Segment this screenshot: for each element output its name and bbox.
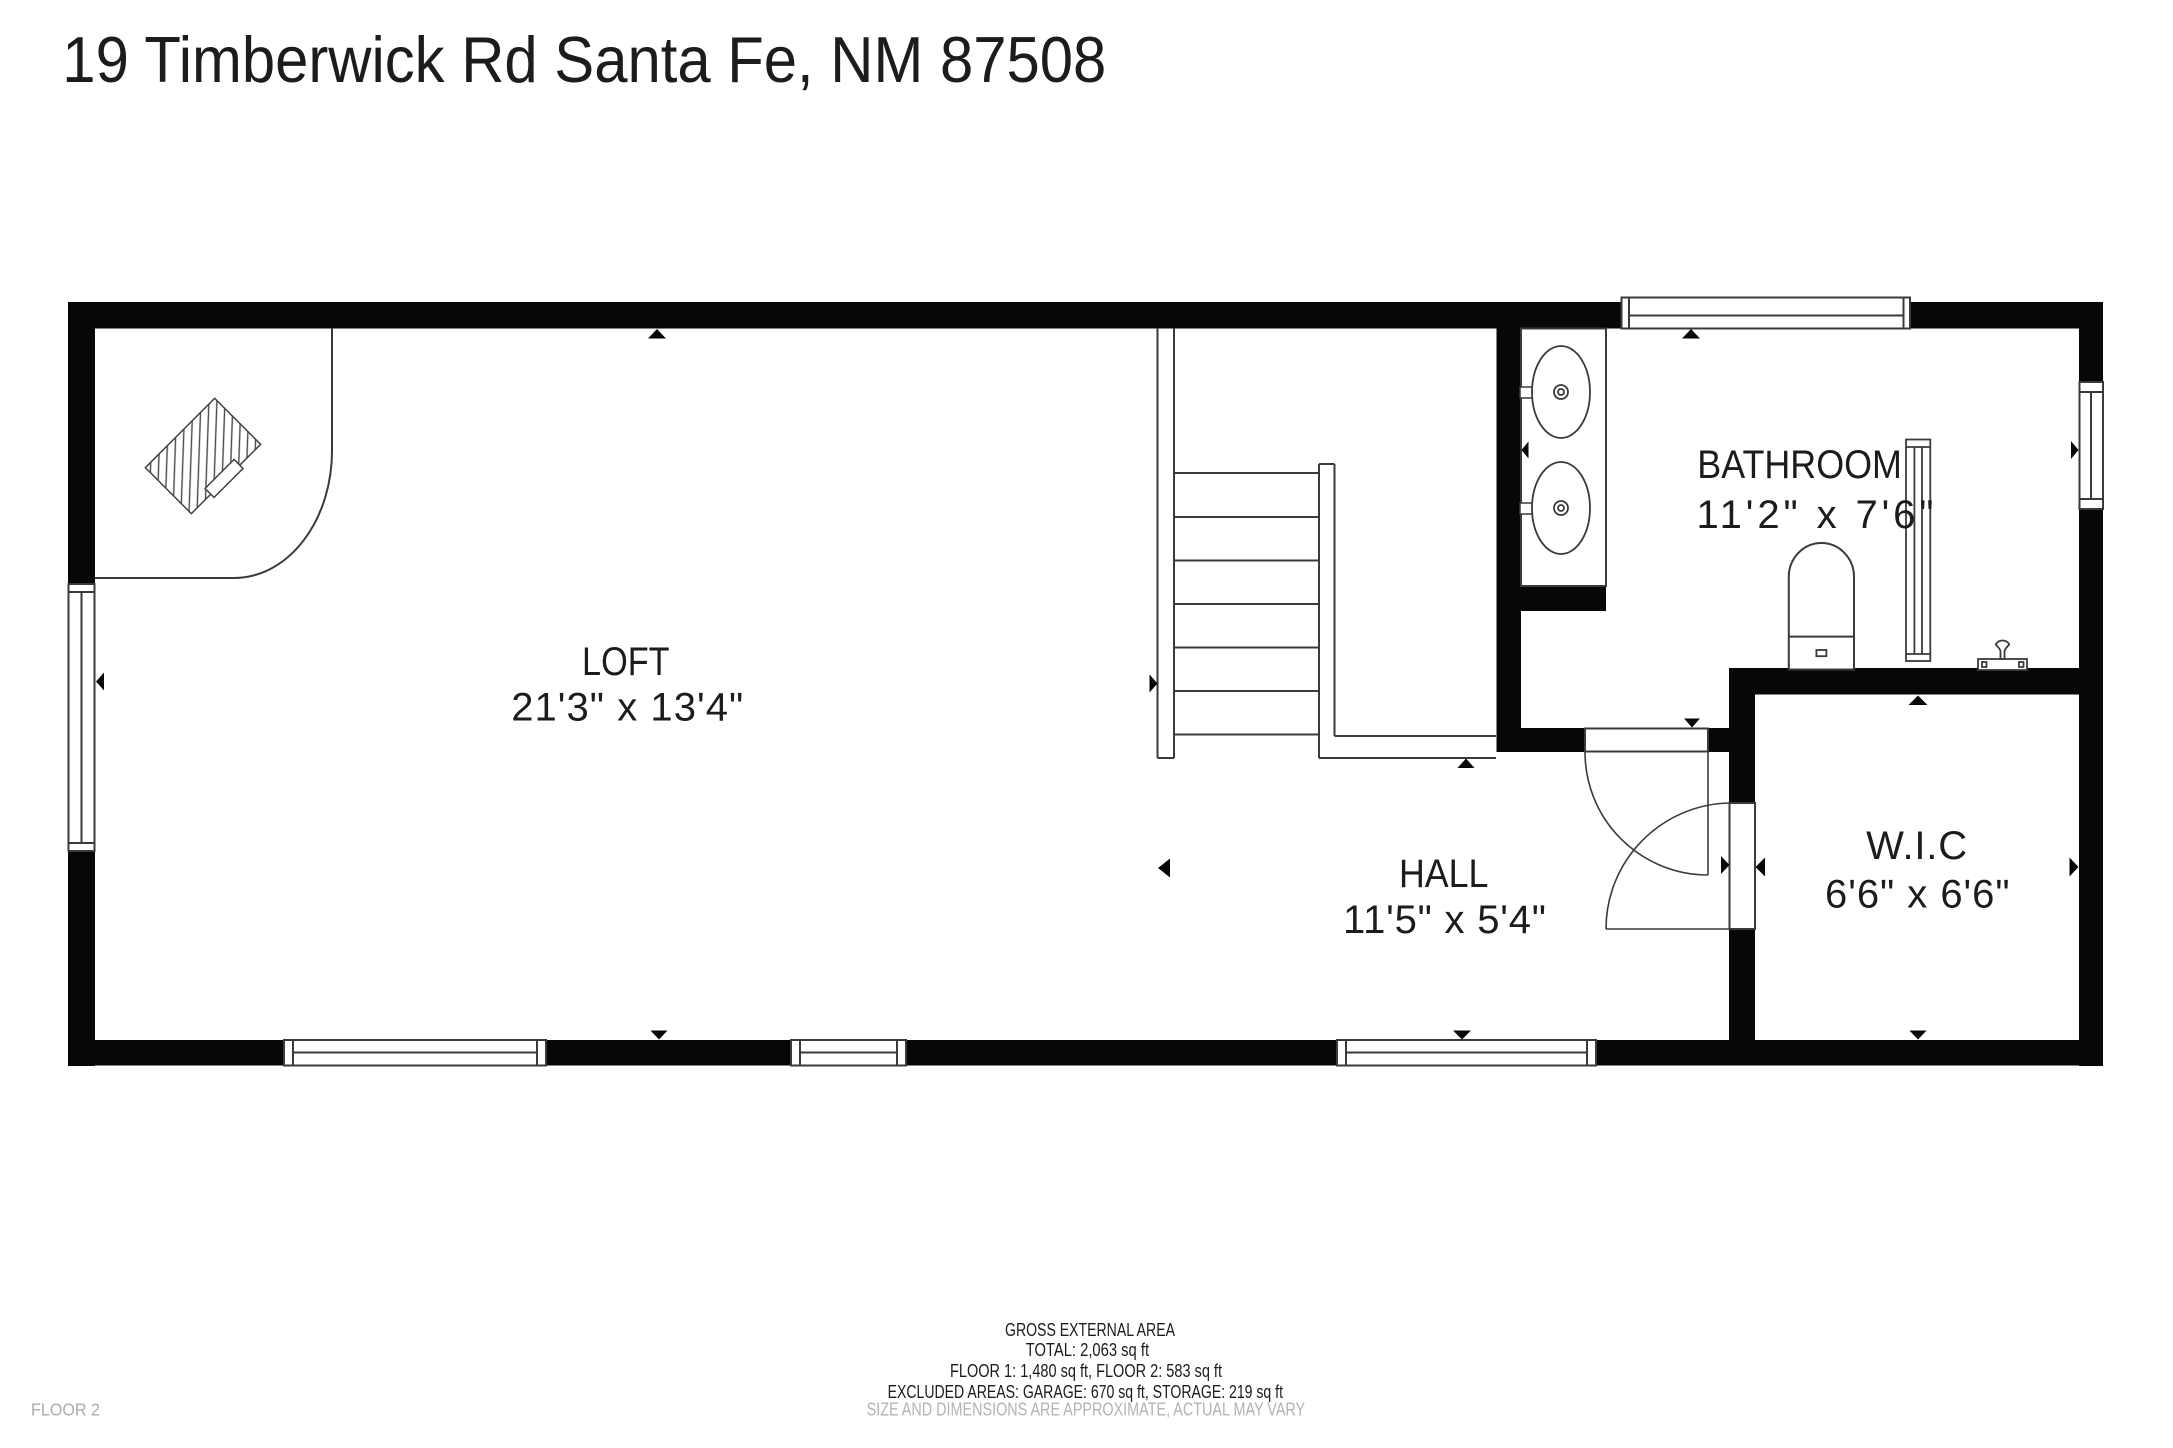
svg-text:LOFT: LOFT <box>582 640 670 684</box>
svg-text:FLOOR 2: FLOOR 2 <box>31 1400 100 1420</box>
svg-text:TOTAL: 2,063 sq ft: TOTAL: 2,063 sq ft <box>1026 1340 1149 1360</box>
svg-text:21'3" x 13'4": 21'3" x 13'4" <box>511 686 743 730</box>
svg-text:GROSS EXTERNAL AREA: GROSS EXTERNAL AREA <box>1005 1320 1175 1340</box>
svg-text:FLOOR 1: 1,480 sq ft, FLOOR 2:: FLOOR 1: 1,480 sq ft, FLOOR 2: 583 sq ft <box>950 1361 1222 1381</box>
svg-text:6'6" x 6'6": 6'6" x 6'6" <box>1825 873 2010 917</box>
svg-text:SIZE AND DIMENSIONS ARE APPROX: SIZE AND DIMENSIONS ARE APPROXIMATE, ACT… <box>867 1399 1306 1419</box>
svg-text:HALL: HALL <box>1399 852 1489 896</box>
svg-text:19 Timberwick Rd Santa Fe, NM: 19 Timberwick Rd Santa Fe, NM 87508 <box>62 23 1106 96</box>
svg-text:11'5" x 5'4": 11'5" x 5'4" <box>1343 898 1546 942</box>
svg-text:BATHROOM: BATHROOM <box>1697 443 1902 487</box>
svg-text:W.I.C: W.I.C <box>1866 824 1967 868</box>
